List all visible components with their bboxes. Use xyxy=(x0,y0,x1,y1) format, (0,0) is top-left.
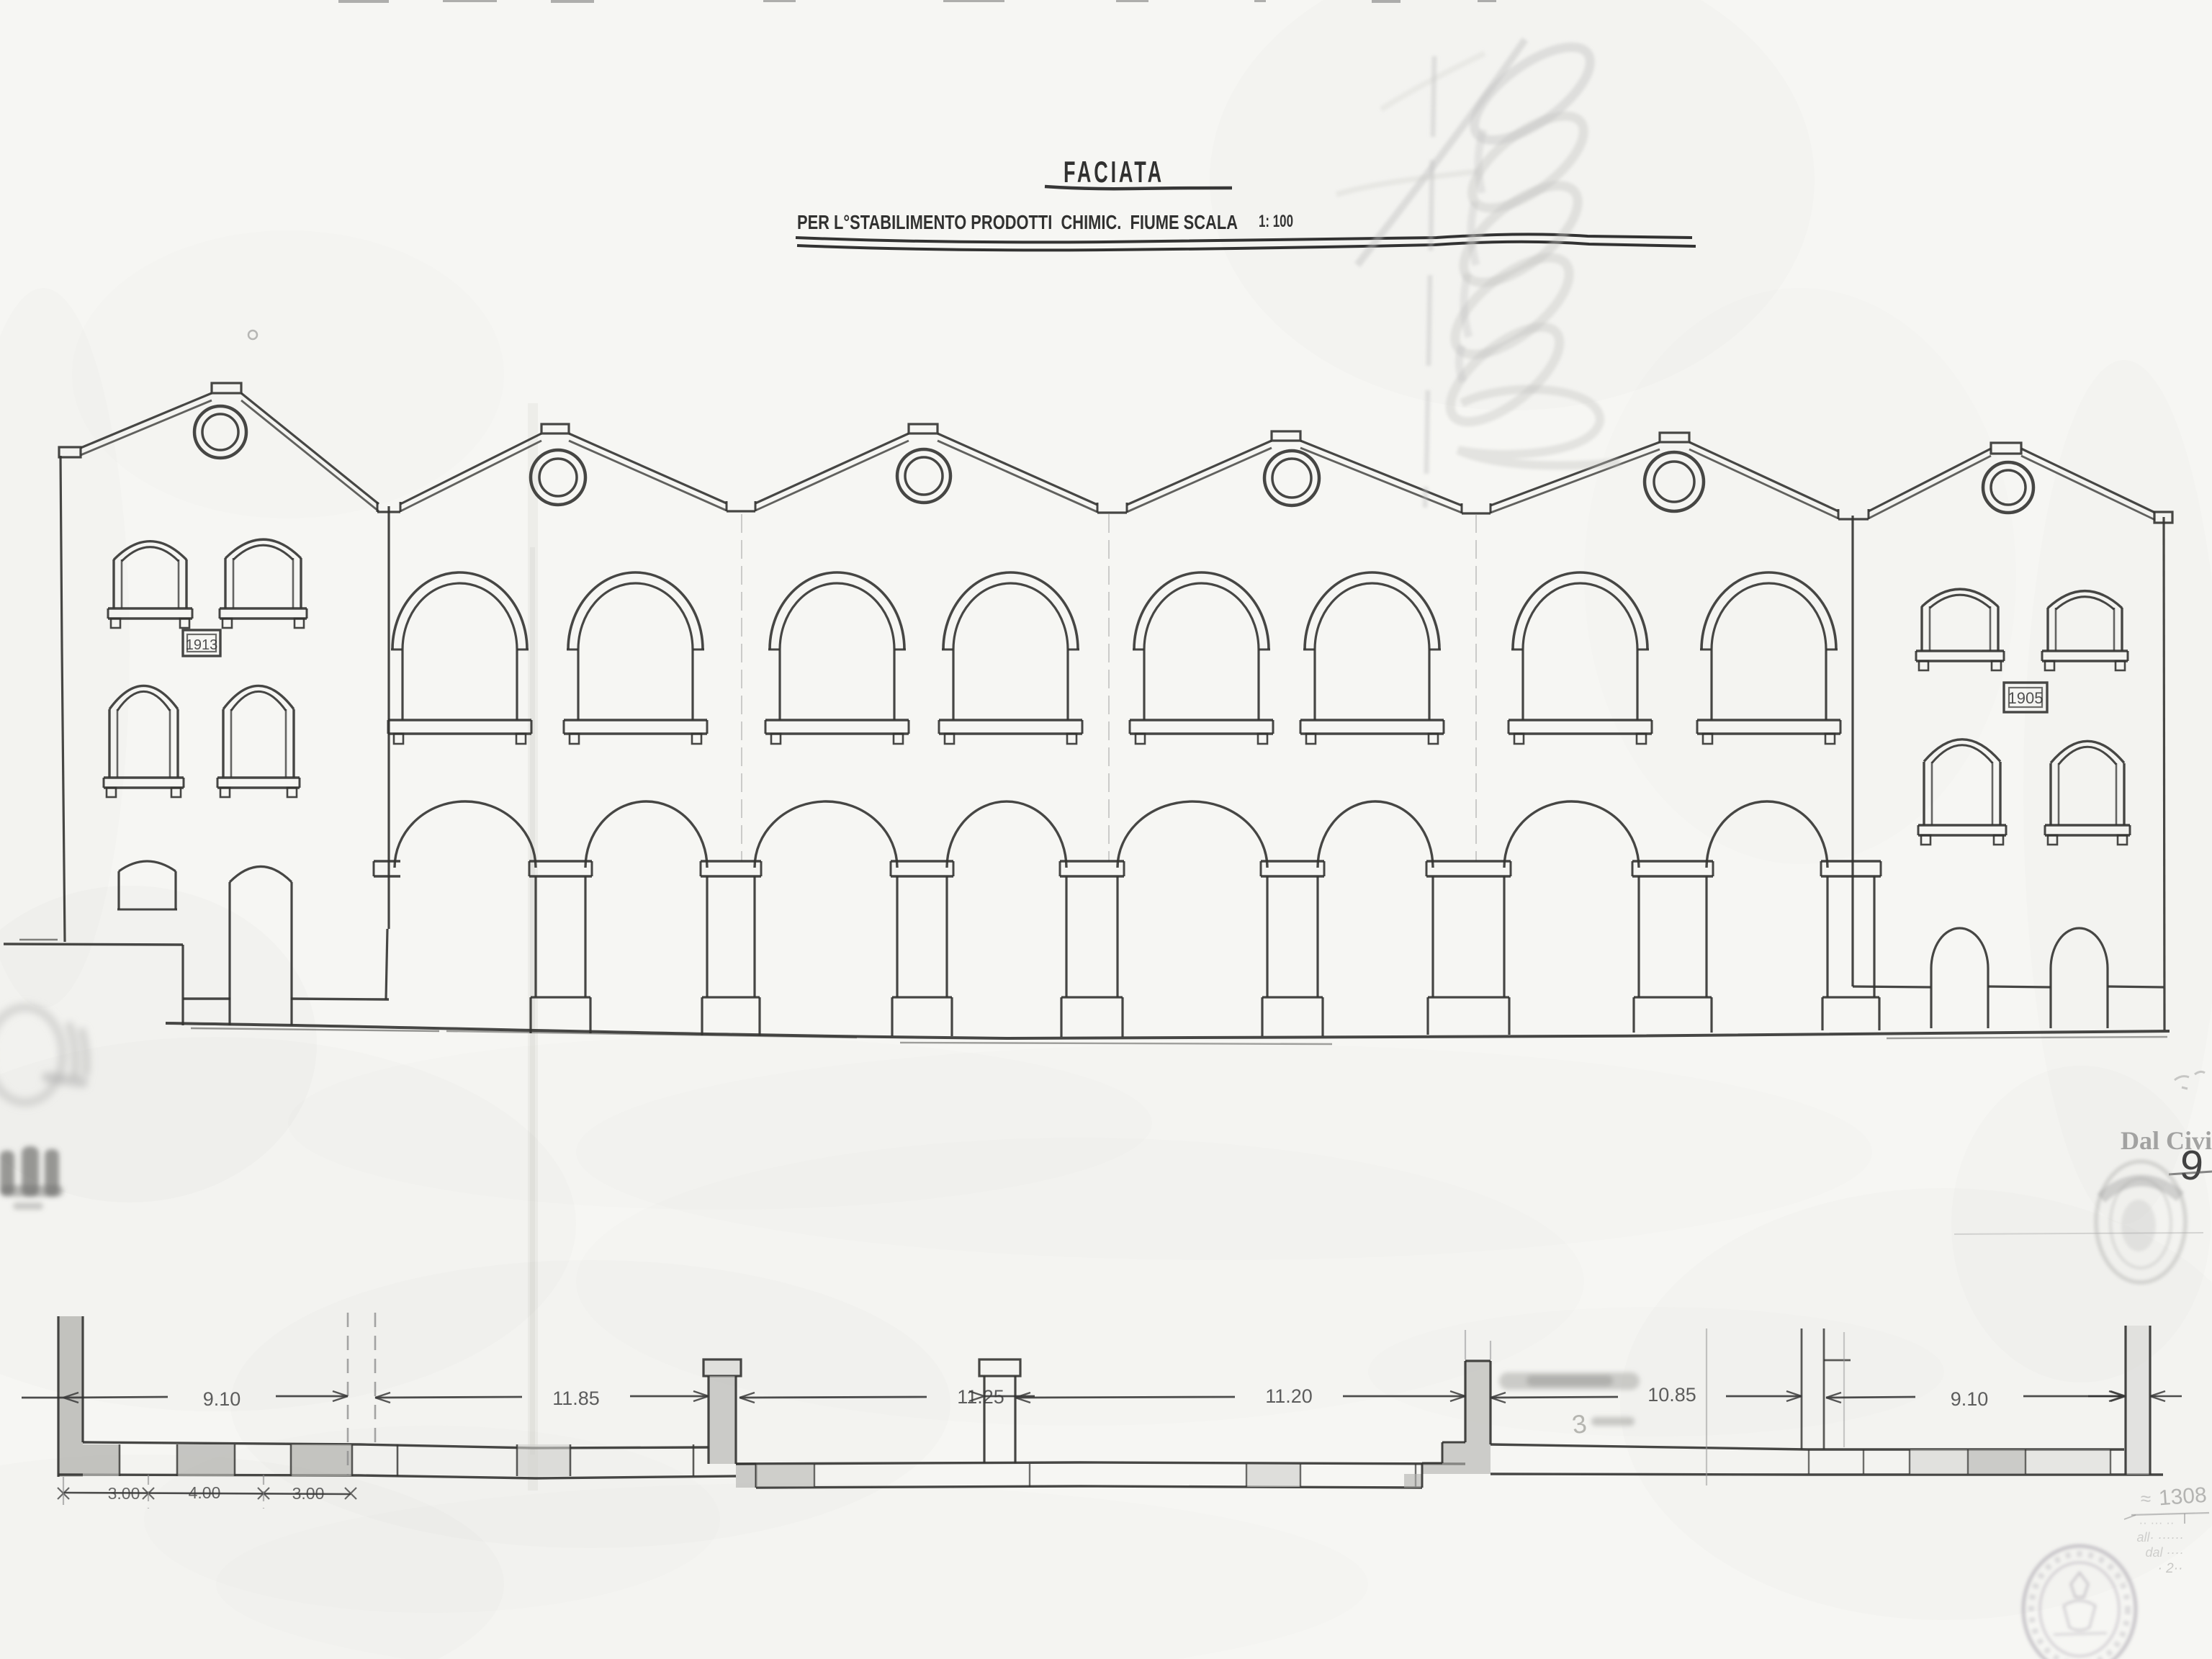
svg-text:1913: 1913 xyxy=(186,637,218,653)
svg-text:≈: ≈ xyxy=(2141,1488,2151,1509)
svg-text:9.10: 9.10 xyxy=(203,1388,241,1410)
svg-text:FACIATA: FACIATA xyxy=(1064,155,1164,189)
svg-text:11.85: 11.85 xyxy=(552,1388,600,1409)
svg-text:dal ····: dal ···· xyxy=(2146,1545,2184,1560)
svg-text:1: 100: 1: 100 xyxy=(1259,212,1293,231)
svg-text:1308: 1308 xyxy=(2158,1483,2208,1511)
svg-text:3.00: 3.00 xyxy=(108,1484,140,1503)
svg-text:all· ······: all· ······ xyxy=(2137,1530,2184,1545)
svg-text:9: 9 xyxy=(2178,1141,2206,1190)
svg-text:·· ··· ··: ·· ··· ·· xyxy=(2139,1516,2174,1529)
svg-text:4.00: 4.00 xyxy=(189,1483,221,1502)
svg-text:11.20: 11.20 xyxy=(1265,1385,1313,1407)
svg-text:1905: 1905 xyxy=(2008,689,2044,707)
svg-text:11.25: 11.25 xyxy=(957,1386,1004,1408)
svg-text:9.10: 9.10 xyxy=(1951,1388,1989,1410)
svg-text:· 2··: · 2·· xyxy=(2158,1561,2183,1576)
svg-text:PER L°STABILIMENTO PRODOTTI C: PER L°STABILIMENTO PRODOTTI CHIMIC. FIUM… xyxy=(797,211,1238,233)
svg-text:3.00: 3.00 xyxy=(292,1484,325,1503)
svg-text:10.85: 10.85 xyxy=(1647,1384,1696,1406)
